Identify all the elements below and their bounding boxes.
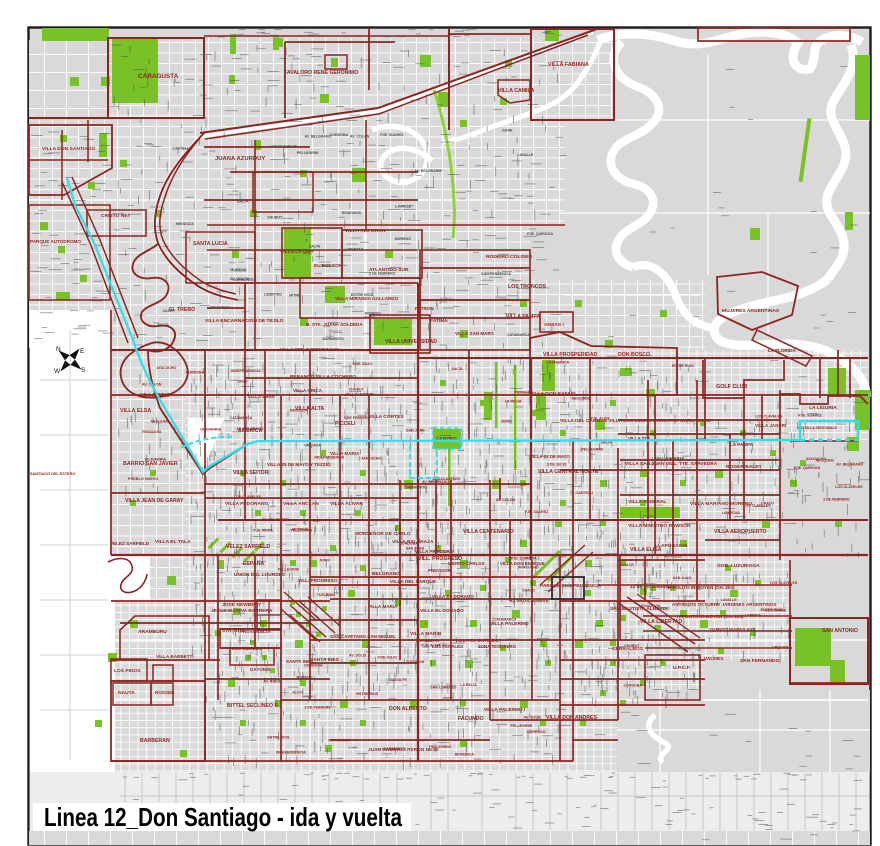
- svg-text:ANSAS I: ANSAS I: [544, 322, 564, 328]
- svg-text:MONSEÑOR DE CARLO: MONSEÑOR DE CARLO: [355, 530, 411, 537]
- svg-text:ROSSER: ROSSER: [155, 690, 175, 695]
- svg-text:AYACUCHO: AYACUCHO: [361, 456, 381, 460]
- svg-text:CHACO: CHACO: [319, 264, 332, 268]
- svg-text:VILLA FABIANA: VILLA FABIANA: [548, 62, 589, 68]
- svg-text:SALTA: SALTA: [309, 244, 321, 248]
- svg-text:ZONA TESORERO: ZONA TESORERO: [478, 644, 517, 649]
- svg-text:LAVALLE: LAVALLE: [517, 153, 534, 157]
- svg-text:PICCELI: PICCELI: [335, 421, 356, 427]
- svg-text:DAYONIE: DAYONIE: [250, 667, 271, 672]
- svg-text:LA LIGURIA: LA LIGURIA: [809, 405, 837, 411]
- svg-text:VILLA CAMILA: VILLA CAMILA: [498, 88, 535, 94]
- svg-text:LAVALLE: LAVALLE: [395, 204, 412, 208]
- svg-text:VILLA CORTES: VILLA CORTES: [368, 414, 404, 420]
- svg-text:NAUTA: NAUTA: [118, 690, 135, 696]
- svg-text:VILLA FEDORANO: VILLA FEDORANO: [225, 501, 268, 507]
- svg-text:PARQUE INDEPENDENCIA: PARQUE INDEPENDENCIA: [540, 583, 602, 589]
- svg-text:PROVIDENCIA: PROVIDENCIA: [240, 629, 271, 634]
- svg-text:JOSE NEWBERY: JOSE NEWBERY: [222, 602, 262, 608]
- svg-text:MENDOZA: MENDOZA: [176, 222, 195, 226]
- svg-text:VILL. PROGRESO: VILL. PROGRESO: [298, 578, 337, 583]
- svg-text:VILLA SAN JUAN VILL. TTE. S: VILLA SAN JUAN VILL. TTE. SAAVEDRA: [625, 461, 718, 467]
- svg-text:ENTRE RIOS: ENTRE RIOS: [672, 364, 695, 368]
- svg-text:SANTA LUCIA: SANTA LUCIA: [193, 241, 228, 247]
- svg-text:JUJUY: JUJUY: [163, 309, 175, 313]
- svg-text:VILLA ENCARNACION DE TEJILO: VILLA ENCARNACION DE TEJILO: [205, 318, 284, 324]
- svg-text:ENTRE RIOS: ENTRE RIOS: [356, 692, 379, 696]
- svg-text:SAN JUAN: SAN JUAN: [673, 576, 692, 580]
- svg-text:LAPRIDA: LAPRIDA: [745, 614, 761, 618]
- svg-text:PELLEGRINI: PELLEGRINI: [510, 724, 532, 728]
- svg-text:LOS CLAVELES: LOS CLAVELES: [770, 581, 798, 585]
- svg-text:PJE. ROCA: PJE. ROCA: [253, 529, 273, 533]
- svg-text:SARMIENTO: SARMIENTO: [322, 337, 344, 341]
- svg-text:S: S: [81, 367, 86, 374]
- svg-text:SARMIENTO: SARMIENTO: [405, 486, 427, 490]
- svg-text:PJE. QUIROGA: PJE. QUIROGA: [527, 232, 553, 236]
- svg-text:JUNIN: JUNIN: [501, 419, 512, 423]
- svg-text:MORENO: MORENO: [365, 312, 381, 316]
- svg-text:GOB. LUZURIAGA: GOB. LUZURIAGA: [717, 563, 760, 569]
- svg-text:URQUIZA: URQUIZA: [304, 444, 321, 448]
- svg-text:VILLA OSIO: VILLA OSIO: [140, 393, 170, 399]
- svg-text:SAN LORENZO: SAN LORENZO: [430, 685, 456, 689]
- svg-text:PJE. QUIROGA: PJE. QUIROGA: [511, 556, 537, 560]
- svg-text:LAVALLE: LAVALLE: [618, 563, 635, 567]
- svg-text:12 de DICIEMBRE: 12 de DICIEMBRE: [510, 598, 549, 603]
- svg-text:INDEPENDENCIA: INDEPENDENCIA: [481, 272, 511, 276]
- svg-text:INDEPENDENCIA: INDEPENDENCIA: [314, 456, 344, 460]
- svg-text:LIBERTAD: LIBERTAD: [264, 292, 282, 296]
- svg-text:MENDOZA: MENDOZA: [290, 409, 309, 413]
- svg-text:MORENO: MORENO: [395, 237, 411, 241]
- svg-text:MORENO: MORENO: [292, 527, 308, 531]
- svg-text:VILLA STO. DOMINGO SAV.: VILLA STO. DOMINGO SAV.: [280, 347, 340, 352]
- svg-text:3 DE FEBRERO: 3 DE FEBRERO: [823, 498, 850, 502]
- svg-text:VILLA ALIVAR: VILLA ALIVAR: [330, 501, 363, 507]
- svg-text:AV. BELGRANO: AV. BELGRANO: [262, 518, 289, 522]
- svg-text:CATAMARCA: CATAMARCA: [230, 416, 253, 420]
- svg-text:ARAMBURU: ARAMBURU: [138, 629, 167, 635]
- svg-text:VILLA EL TALA: VILLA EL TALA: [155, 539, 191, 545]
- svg-text:JUJUY: JUJUY: [292, 691, 304, 695]
- svg-text:VILLA PAMPA: VILLA PAMPA: [506, 314, 540, 320]
- svg-text:OLAVARRIA: OLAVARRIA: [200, 427, 221, 431]
- svg-text:VILLA CRICA: VILLA CRICA: [293, 388, 323, 393]
- svg-text:CHACO: CHACO: [522, 589, 535, 593]
- svg-text:AV. BELGRANO: AV. BELGRANO: [304, 134, 331, 138]
- svg-text:VILLA ANCLAN: VILLA ANCLAN: [283, 501, 319, 507]
- svg-text:CARAGUSTA: CARAGUSTA: [138, 73, 179, 80]
- svg-text:DON ALBERTO: DON ALBERTO: [389, 706, 427, 712]
- svg-text:VILLA ELSA: VILLA ELSA: [120, 408, 151, 414]
- svg-text:W: W: [54, 368, 61, 375]
- svg-text:ENTRE RIOS: ENTRE RIOS: [761, 608, 784, 612]
- svg-text:AYACUCHO: AYACUCHO: [156, 366, 176, 370]
- svg-text:3 DE FEBRERO: 3 DE FEBRERO: [344, 416, 371, 420]
- svg-text:AV. SOLIS: AV. SOLIS: [437, 549, 455, 553]
- svg-text:MUJERES ARGENTINAS: MUJERES ARGENTINAS: [722, 308, 780, 314]
- svg-text:VILLA PALERMO: VILLA PALERMO: [490, 621, 529, 627]
- svg-text:N: N: [56, 346, 61, 353]
- svg-text:VILLA UNIVERSIDAD: VILLA UNIVERSIDAD: [385, 339, 437, 345]
- svg-text:BARRIO SAN JAVIER: BARRIO SAN JAVIER: [123, 461, 178, 467]
- svg-text:JUNIN: JUNIN: [319, 558, 330, 562]
- svg-text:PJE. SUAREZ: PJE. SUAREZ: [380, 133, 404, 137]
- svg-text:PJE. ALEM: PJE. ALEM: [591, 417, 610, 421]
- svg-text:LLAPORAGHI: LLAPORAGHI: [655, 543, 688, 549]
- svg-text:RIVADAVIA: RIVADAVIA: [455, 753, 475, 757]
- svg-text:FAVALORO RENE GERONIMO: FAVALORO RENE GERONIMO: [284, 70, 358, 76]
- svg-text:SAN FERNANDO: SAN FERNANDO: [740, 658, 780, 664]
- svg-text:9 DE JULIO: 9 DE JULIO: [547, 463, 567, 467]
- svg-text:Linea 12_Don Santiago - ida y: Linea 12_Don Santiago - ida y vuelta: [44, 802, 402, 832]
- svg-text:AYACUCHO: AYACUCHO: [210, 306, 230, 310]
- svg-text:OLAVARRIA: OLAVARRIA: [145, 458, 166, 462]
- svg-text:LIBERTAD: LIBERTAD: [722, 511, 740, 515]
- svg-text:JUNIN: JUNIN: [237, 380, 248, 384]
- svg-text:RODEIRO COLISEO: RODEIRO COLISEO: [486, 254, 532, 260]
- svg-text:VILLA DEL PARQUE: VILLA DEL PARQUE: [390, 579, 437, 585]
- svg-text:CORDOBA: CORDOBA: [304, 664, 323, 668]
- svg-text:9 DE JULIO: 9 DE JULIO: [377, 655, 397, 659]
- svg-text:VILLA AEROPUERTO: VILLA AEROPUERTO: [714, 529, 767, 535]
- svg-text:LIBERTAD: LIBERTAD: [345, 247, 363, 251]
- svg-text:LOS CLAVELES: LOS CLAVELES: [835, 485, 863, 489]
- svg-text:CORRIENTES: CORRIENTES: [233, 278, 257, 282]
- svg-text:AV. BELGRANO: AV. BELGRANO: [414, 169, 441, 173]
- svg-text:NEUQUEN: NEUQUEN: [571, 397, 589, 401]
- svg-text:ENTRE RIOS: ENTRE RIOS: [351, 293, 374, 297]
- svg-text:CATAMARCA: CATAMARCA: [546, 361, 569, 365]
- svg-text:PJE. SUAREZ: PJE. SUAREZ: [525, 510, 549, 514]
- svg-text:FATIMA: FATIMA: [430, 318, 448, 324]
- svg-text:AV. SOLIS: AV. SOLIS: [349, 653, 367, 657]
- svg-text:RIVADAVIA: RIVADAVIA: [342, 211, 362, 215]
- svg-text:CHUBUT: CHUBUT: [624, 644, 640, 648]
- svg-text:3 DE FEBRERO: 3 DE FEBRERO: [304, 706, 331, 710]
- svg-text:SAN ANTONIO: SAN ANTONIO: [822, 628, 858, 634]
- svg-text:VILLA JEAN DE GARAY: VILLA JEAN DE GARAY: [125, 498, 184, 504]
- svg-text:LOS PINOS: LOS PINOS: [114, 668, 141, 674]
- svg-text:VILLA BARBETTI: VILLA BARBETTI: [156, 654, 194, 659]
- svg-text:VILLA FEDERAL: VILLA FEDERAL: [628, 499, 666, 505]
- svg-text:PUEBLO NUEVO: PUEBLO NUEVO: [128, 477, 158, 481]
- svg-text:SALTA: SALTA: [237, 200, 249, 204]
- svg-text:PELLEGRINI: PELLEGRINI: [297, 151, 319, 155]
- svg-text:CORDOBA: CORDOBA: [330, 133, 349, 137]
- svg-text:VILLA SAN MART.: VILLA SAN MART.: [455, 331, 494, 336]
- svg-text:CATAMARCA: CATAMARCA: [507, 333, 530, 337]
- svg-text:TUCUMAN: TUCUMAN: [317, 593, 336, 597]
- svg-text:VILLA SEITOR: VILLA SEITOR: [233, 470, 269, 476]
- svg-text:LA RIOJA: LA RIOJA: [460, 683, 477, 687]
- svg-text:LAVALLE: LAVALLE: [721, 598, 738, 602]
- svg-text:INDEPENDENCIA: INDEPENDENCIA: [276, 750, 306, 754]
- svg-text:VILLA MINISTRO RAWSON: VILLA MINISTRO RAWSON: [628, 523, 691, 529]
- svg-text:CATAMARCA: CATAMARCA: [494, 618, 517, 622]
- svg-text:NEUQUEN: NEUQUEN: [816, 458, 834, 462]
- svg-text:VILLA PROSPERIDAD: VILLA PROSPERIDAD: [543, 352, 598, 358]
- svg-text:BITTEL SECLINEO F.: BITTEL SECLINEO F.: [227, 703, 279, 709]
- svg-text:SANTIAGO DEL ESTERO: SANTIAGO DEL ESTERO: [30, 472, 75, 476]
- svg-text:JUANA AZURDUY: JUANA AZURDUY: [215, 156, 265, 162]
- svg-text:PELLEGRINI: PELLEGRINI: [429, 745, 451, 749]
- svg-text:VILLA CENTENARIO: VILLA CENTENARIO: [463, 529, 514, 535]
- svg-text:VILLA 25 DE MAYO Y TEZZIO: VILLA 25 DE MAYO Y TEZZIO: [267, 462, 331, 467]
- svg-text:CASTELLI: CASTELLI: [575, 491, 593, 495]
- svg-text:MITRE: MITRE: [289, 293, 301, 297]
- svg-text:VILLA DON ANDRES: VILLA DON ANDRES: [546, 715, 597, 721]
- svg-text:12 de DICIEMBRE: 12 de DICIEMBRE: [630, 584, 671, 590]
- svg-text:AV. SOLIS: AV. SOLIS: [524, 715, 542, 719]
- svg-text:VELEZ SARFIELD: VELEZ SARFIELD: [110, 541, 150, 546]
- svg-text:SALTA: SALTA: [451, 367, 463, 371]
- svg-text:SALTA: SALTA: [158, 323, 170, 327]
- svg-text:VILLA DON RAFAEL: VILLA DON RAFAEL: [530, 391, 577, 397]
- svg-text:CRISTO REY: CRISTO REY: [101, 213, 132, 219]
- svg-text:VILLA DEL CARMEN VILLA LOS LU: VILLA DEL CARMEN VILLA LOS LUISES BANCAR…: [560, 418, 712, 424]
- svg-text:LOS CLAVELES: LOS CLAVELES: [755, 415, 783, 419]
- svg-text:E: E: [80, 348, 85, 355]
- svg-text:INDEPENDENCIA: INDEPENDENCIA: [231, 369, 261, 373]
- svg-text:AV. ROCA: AV. ROCA: [263, 680, 280, 684]
- svg-text:PELLEGRINI: PELLEGRINI: [278, 568, 300, 572]
- svg-text:SANTA FE: SANTA FE: [389, 678, 407, 682]
- svg-text:HIPOLITO IRIGOYEN (CH. 205): HIPOLITO IRIGOYEN (CH. 205): [677, 614, 744, 619]
- svg-text:LOS TRONCOS: LOS TRONCOS: [508, 284, 547, 290]
- svg-text:VILLA EL DORADO: VILLA EL DORADO: [420, 608, 464, 614]
- svg-text:PARQUE AUTODROMO: PARQUE AUTODROMO: [30, 239, 81, 244]
- svg-text:TUCUMAN: TUCUMAN: [406, 660, 425, 664]
- svg-text:U.P.C.F.: U.P.C.F.: [673, 665, 691, 671]
- svg-text:VIERRO CARLOS: VIERRO CARLOS: [448, 561, 485, 566]
- svg-text:CORDOBA: CORDOBA: [624, 684, 643, 688]
- svg-text:BARBERAN: BARBERAN: [140, 738, 170, 744]
- svg-text:CHUBUT: CHUBUT: [349, 387, 365, 391]
- svg-text:GOLF CLUB: GOLF CLUB: [716, 384, 748, 390]
- svg-text:RIVADAVIA: RIVADAVIA: [142, 430, 162, 434]
- svg-text:3 DE FEBRERO: 3 DE FEBRERO: [369, 272, 396, 276]
- svg-text:AV. BELGRANO: AV. BELGRANO: [836, 462, 863, 466]
- svg-text:BELGRANO: BELGRANO: [372, 571, 400, 577]
- svg-text:LA FLORIDA: LA FLORIDA: [768, 348, 796, 353]
- svg-text:VILLA DON SANTIAGO: VILLA DON SANTIAGO: [42, 146, 96, 152]
- svg-text:ANTIGUOS OCTUBRE JARDINES ARGE: ANTIGUOS OCTUBRE JARDINES ARGENTINOS: [672, 602, 776, 607]
- svg-text:AV. COLON: AV. COLON: [350, 135, 370, 139]
- svg-text:CATAMARCA: CATAMARCA: [328, 738, 351, 742]
- svg-text:RIVADAVIA: RIVADAVIA: [641, 604, 661, 608]
- svg-text:URQUIZA: URQUIZA: [772, 646, 789, 650]
- svg-text:ROGER BALET: ROGER BALET: [726, 464, 762, 470]
- svg-text:VALDES: VALDES: [704, 656, 724, 662]
- svg-text:HIPOLITO IRIGOYEN (CH. 203): HIPOLITO IRIGOYEN (CH. 203): [668, 585, 735, 590]
- svg-text:VILLA REJ BRON: VILLA REJ BRON: [345, 228, 386, 234]
- svg-text:CHUBUT: CHUBUT: [267, 215, 283, 219]
- svg-text:VILLA LIBERTAD: VILLA LIBERTAD: [640, 619, 682, 625]
- svg-text:VILLA CONTI: VILLA CONTI: [345, 392, 374, 397]
- svg-text:LOS CLAVELES: LOS CLAVELES: [234, 495, 262, 499]
- svg-text:AV. BELGRANO: AV. BELGRANO: [236, 427, 263, 431]
- svg-text:CORDOBA: CORDOBA: [186, 371, 205, 375]
- svg-text:SANTA INES: SANTA INES: [310, 657, 340, 663]
- svg-text:MORENO: MORENO: [296, 675, 312, 679]
- svg-text:JUNIN: JUNIN: [502, 128, 513, 132]
- svg-text:VILLA EL DORADO: VILLA EL DORADO: [432, 594, 474, 599]
- svg-text:UNION DEL LOURDES: UNION DEL LOURDES: [234, 572, 286, 578]
- svg-text:PERANDO VILLA COCHERO: PERANDO VILLA COCHERO: [290, 374, 356, 380]
- svg-text:VILLA CENTRAL NORTE: VILLA CENTRAL NORTE: [538, 469, 599, 475]
- svg-text:QUINTO MAPAS AVE.: QUINTO MAPAS AVE.: [710, 627, 757, 632]
